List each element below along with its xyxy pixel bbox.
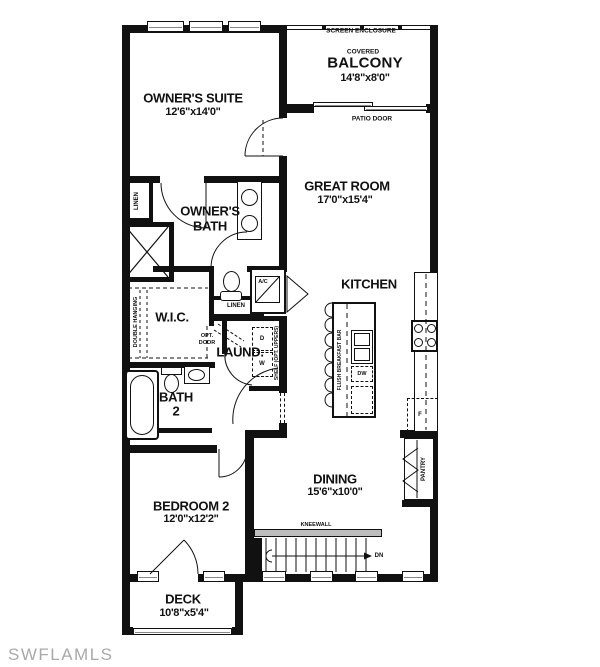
balcony-label: BALCONY <box>327 55 403 72</box>
dn-label: DN <box>375 553 384 559</box>
kneewall-label: KNEEWALL <box>301 522 332 528</box>
balcony-dims: 14'8"x8'0" <box>340 72 389 84</box>
pantry-bifold <box>403 448 418 492</box>
laundry-label: LAUND. <box>216 345 263 360</box>
stair-arrow-head <box>364 553 372 560</box>
wic-rods <box>140 290 147 358</box>
owners-bath-label-2: BATH <box>193 219 227 234</box>
wc-door <box>211 232 247 268</box>
wic-label: W.I.C. <box>155 310 189 325</box>
patio-door-label: PATIO DOOR <box>352 116 392 123</box>
bedroom2-door <box>219 449 247 477</box>
dining-label: DINING <box>313 472 357 487</box>
fridge-label: F <box>418 412 422 418</box>
screen-enclosure-label: SCREEN ENCLOSURE <box>326 28 396 35</box>
flush-bar-label: FLUSH BREAKFAST BAR <box>337 330 343 391</box>
kitchen-label: KITCHEN <box>341 277 397 292</box>
bar-stools <box>325 303 332 407</box>
great-room-label: GREAT ROOM <box>304 179 390 194</box>
shower-x <box>126 227 168 277</box>
bath2-label-2: 2 <box>173 404 180 419</box>
linework-layer <box>0 0 600 667</box>
linen-label: LINEN <box>134 192 140 210</box>
owners-suite-label: OWNER'S SUITE <box>143 91 243 106</box>
pantry-label: PANTRY <box>421 457 427 481</box>
owners-bath-label-1: OWNER'S <box>180 204 240 219</box>
bedroom2-label: BEDROOM 2 <box>153 499 229 514</box>
deck-dims: 10'8"x5'4" <box>159 607 208 619</box>
hall-door <box>233 368 278 424</box>
hall-great-room-door <box>287 276 308 312</box>
watermark: SWFLAMLS <box>8 645 114 665</box>
washer-label: W <box>259 361 265 367</box>
dw-label: DW <box>357 371 366 377</box>
bath2-label-1: BATH <box>159 390 193 405</box>
linen2-label: LINEN <box>227 303 245 309</box>
opt-door-label-2: DOOR <box>199 340 216 346</box>
stair-arrow-hook <box>266 550 272 562</box>
great-room-dims: 17'0"x15'4" <box>317 194 372 206</box>
deck-label: DECK <box>165 592 201 607</box>
stair-risers <box>266 538 366 572</box>
opt-door-label-1: OPT. <box>201 333 213 339</box>
bedroom2-dims: 12'0"x12'2" <box>163 513 218 525</box>
deck-door <box>150 540 198 574</box>
dining-dims: 15'6"x10'0" <box>307 486 362 498</box>
floor-plan: SCREEN ENCLOSURE COVERED BALCONY 14'8"x8… <box>0 0 600 667</box>
ac-label: A/C <box>258 279 267 285</box>
owners-suite-dims: 12'6"x14'0" <box>165 106 220 118</box>
double-hanging-label: DOUBLE HANGING <box>133 297 139 348</box>
owners-suite-door <box>245 118 283 156</box>
shelf-label: SHELF (OPT. UPPERS) <box>274 326 280 380</box>
dryer-label: D <box>260 336 264 342</box>
